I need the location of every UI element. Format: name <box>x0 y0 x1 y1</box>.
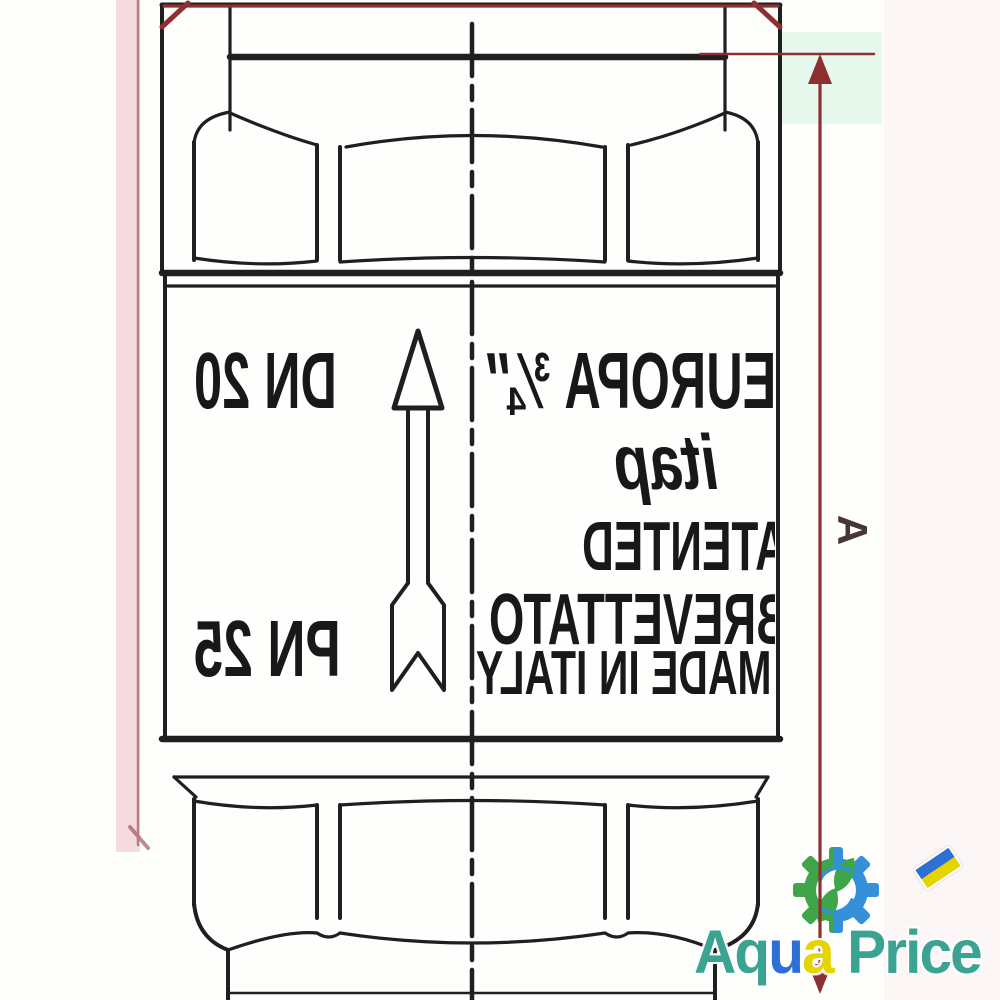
watermark-text: Aqua Price <box>694 922 981 983</box>
hex-nut-bottom <box>194 799 758 950</box>
watermark-segment: a <box>802 918 833 986</box>
valve-body-markings: DN 20 EUROPA ¾″ itap PATENTED BREVETTATO… <box>168 285 775 737</box>
watermark-segment: u <box>768 918 802 986</box>
marking-pn: PN 25 <box>194 609 341 689</box>
marking-made-in-italy: MADE IN ITALY <box>476 643 772 705</box>
marking-patented: PATENTED <box>582 511 775 581</box>
watermark-segment: Aq <box>694 918 768 986</box>
marking-dn: DN 20 <box>194 341 337 421</box>
marking-size: EUROPA ¾″ <box>486 341 775 421</box>
product-drawing-image: DN 20 EUROPA ¾″ itap PATENTED BREVETTATO… <box>0 0 1000 1000</box>
left-dimension-artifact <box>130 0 148 848</box>
marking-brand-itap: itap <box>614 423 718 501</box>
watermark-segment: Pr <box>833 918 905 986</box>
watermark-segment: ce <box>919 918 980 986</box>
hex-nut-top <box>194 112 758 264</box>
watermark-segment: i <box>905 918 919 986</box>
dimension-a-label: A <box>826 504 878 556</box>
